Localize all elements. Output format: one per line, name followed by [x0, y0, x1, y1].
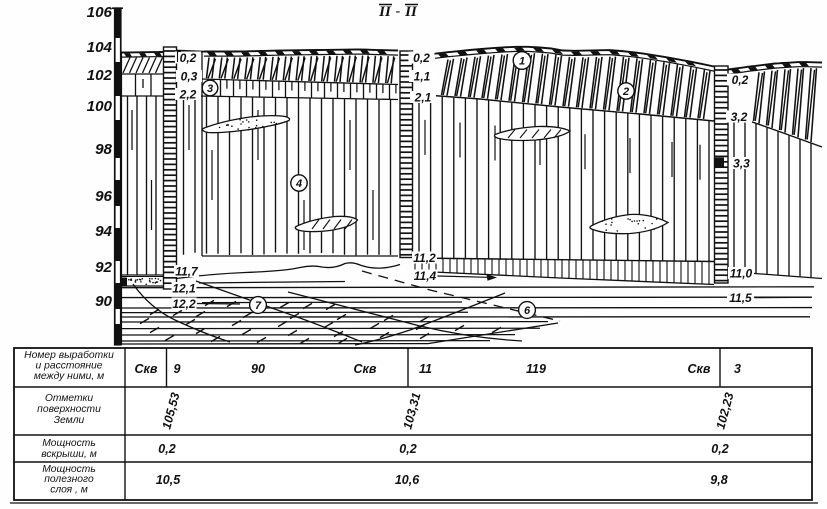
svg-text:9: 9 — [174, 362, 181, 376]
svg-text:4: 4 — [295, 178, 302, 190]
svg-text:Скв: Скв — [688, 362, 711, 376]
svg-text:3: 3 — [207, 83, 213, 95]
svg-text:2,2: 2,2 — [179, 87, 197, 101]
svg-text:0,2: 0,2 — [413, 51, 430, 65]
svg-text:вскрыши, м: вскрыши, м — [41, 449, 97, 460]
svg-text:11,2: 11,2 — [413, 251, 436, 265]
svg-text:119: 119 — [526, 362, 546, 376]
svg-text:слоя , м: слоя , м — [50, 485, 88, 496]
svg-text:3: 3 — [734, 362, 741, 376]
svg-text:между ними, м: между ними, м — [34, 371, 104, 382]
svg-text:0,2: 0,2 — [180, 51, 197, 65]
svg-text:94: 94 — [95, 223, 112, 240]
svg-text:106: 106 — [87, 4, 113, 21]
svg-text:и расстояние: и расстояние — [36, 361, 103, 372]
svg-text:9,8: 9,8 — [710, 473, 727, 487]
svg-text:Мощность: Мощность — [42, 438, 96, 449]
svg-text:90: 90 — [95, 293, 112, 310]
svg-text:Скв: Скв — [354, 362, 377, 376]
svg-text:92: 92 — [95, 259, 112, 276]
svg-text:6: 6 — [524, 305, 531, 317]
svg-text:12,2: 12,2 — [172, 297, 196, 311]
svg-text:96: 96 — [95, 188, 112, 205]
svg-text:Отметки: Отметки — [45, 393, 94, 404]
svg-text:10,5: 10,5 — [156, 473, 181, 487]
svg-text:0,2: 0,2 — [158, 442, 175, 456]
svg-text:Земли: Земли — [54, 415, 85, 426]
svg-text:100: 100 — [87, 98, 113, 115]
svg-text:1: 1 — [519, 56, 525, 68]
svg-text:102: 102 — [87, 67, 113, 84]
svg-text:11,0: 11,0 — [730, 266, 753, 280]
svg-text:98: 98 — [95, 141, 112, 158]
svg-text:Номер выработки: Номер выработки — [24, 349, 114, 361]
svg-text:11,7: 11,7 — [175, 264, 199, 278]
svg-text:3,2: 3,2 — [731, 110, 748, 124]
svg-text:0,2: 0,2 — [399, 442, 416, 456]
svg-text:0,3: 0,3 — [181, 69, 198, 83]
svg-text:полезного: полезного — [44, 474, 94, 485]
svg-text:12,1: 12,1 — [172, 281, 196, 295]
svg-text:1,1: 1,1 — [414, 69, 431, 83]
svg-text:поверхности: поверхности — [37, 404, 101, 415]
svg-text:11,5: 11,5 — [729, 291, 752, 305]
svg-text:Скв: Скв — [135, 362, 158, 376]
svg-text:3,3: 3,3 — [733, 156, 750, 170]
svg-text:II: II — [378, 4, 392, 20]
svg-text:104: 104 — [87, 39, 113, 56]
svg-text:7: 7 — [255, 300, 262, 312]
svg-text:11,4: 11,4 — [414, 269, 437, 283]
svg-text:10,6: 10,6 — [395, 473, 420, 487]
svg-text:11: 11 — [419, 362, 432, 376]
svg-text:2: 2 — [622, 86, 629, 98]
svg-text:II: II — [404, 4, 418, 20]
svg-text:0,2: 0,2 — [711, 442, 728, 456]
svg-text:90: 90 — [251, 362, 265, 376]
svg-text:-: - — [396, 4, 401, 19]
svg-text:2,1: 2,1 — [414, 90, 432, 104]
svg-text:0,2: 0,2 — [732, 73, 749, 87]
